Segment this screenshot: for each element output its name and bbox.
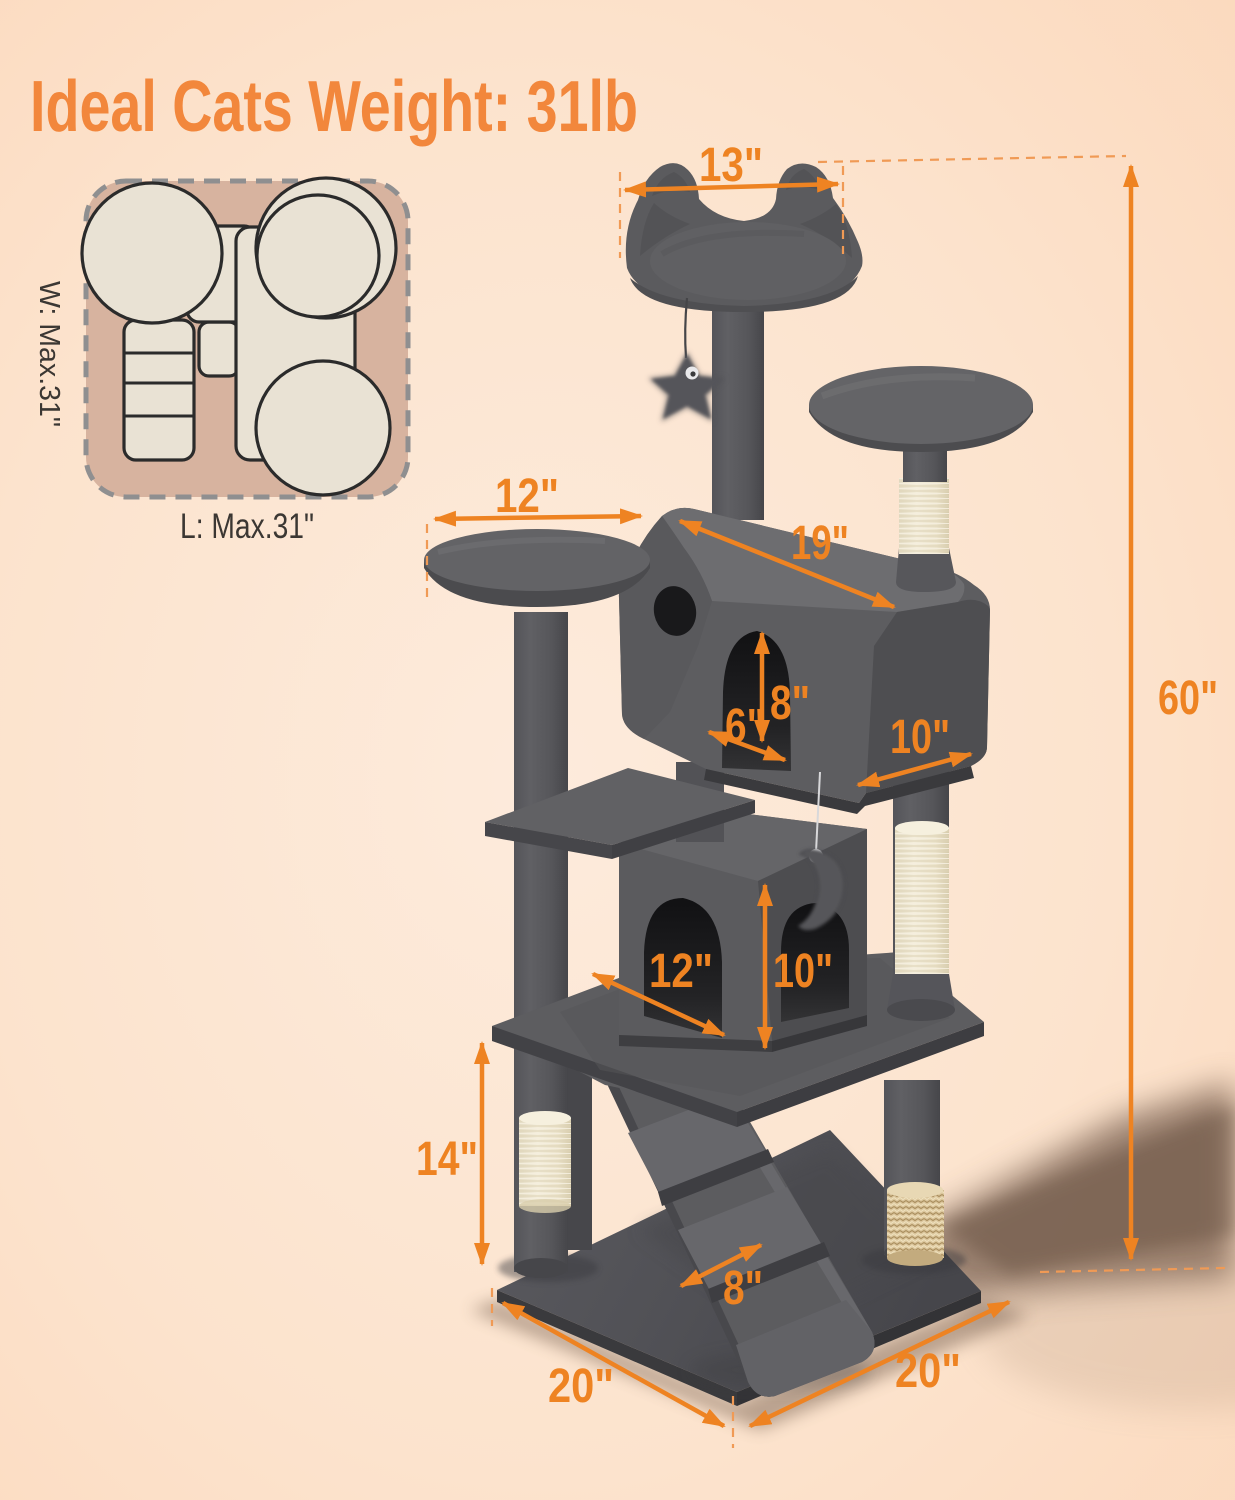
svg-text:19": 19" xyxy=(791,517,849,570)
svg-text:8": 8" xyxy=(770,677,810,730)
svg-text:13": 13" xyxy=(699,139,763,192)
svg-text:W: Max.31": W: Max.31" xyxy=(33,281,65,427)
svg-text:10": 10" xyxy=(773,945,833,998)
svg-text:12": 12" xyxy=(649,945,713,998)
svg-text:8": 8" xyxy=(723,1262,763,1315)
svg-text:Ideal Cats Weight: 31lb: Ideal Cats Weight: 31lb xyxy=(30,67,638,147)
svg-text:60": 60" xyxy=(1158,672,1218,725)
svg-text:10": 10" xyxy=(890,711,950,764)
svg-text:20": 20" xyxy=(895,1345,961,1398)
svg-text:L: Max.31": L: Max.31" xyxy=(180,507,314,546)
svg-text:20": 20" xyxy=(548,1360,614,1413)
svg-text:12": 12" xyxy=(495,470,559,523)
svg-text:6": 6" xyxy=(725,700,765,753)
svg-text:14": 14" xyxy=(416,1133,478,1186)
